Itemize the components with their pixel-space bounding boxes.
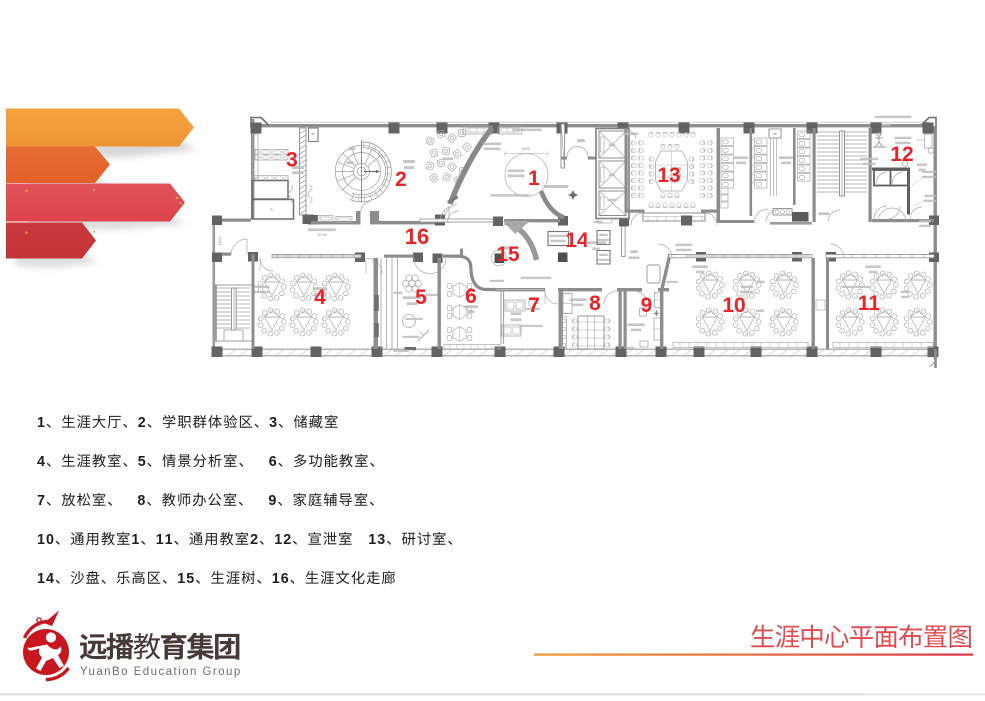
- svg-text:6: 6: [281, 571, 289, 587]
- svg-text:6: 6: [269, 454, 277, 470]
- svg-text:3: 3: [269, 415, 277, 431]
- svg-text:1: 1: [368, 532, 376, 548]
- svg-text:1: 1: [272, 571, 280, 587]
- svg-text:7: 7: [37, 493, 45, 509]
- svg-text:8: 8: [137, 493, 145, 509]
- svg-text:9: 9: [641, 294, 653, 317]
- svg-text:1: 1: [165, 532, 173, 548]
- svg-text:9: 9: [268, 493, 276, 509]
- svg-text:11: 11: [858, 292, 881, 315]
- svg-text:36.0m: 36.0m: [317, 233, 327, 237]
- svg-text:1: 1: [156, 532, 164, 548]
- svg-text:5: 5: [186, 571, 194, 587]
- svg-text:13: 13: [657, 164, 680, 187]
- svg-text:16: 16: [405, 224, 429, 249]
- svg-text:2: 2: [250, 532, 258, 548]
- svg-text:2: 2: [395, 168, 407, 191]
- svg-text:2: 2: [138, 415, 146, 431]
- svg-text:6000: 6000: [522, 147, 530, 151]
- svg-text:1: 1: [37, 532, 45, 548]
- svg-text:1: 1: [177, 571, 185, 587]
- svg-text:2: 2: [283, 532, 291, 548]
- svg-text:15: 15: [496, 243, 520, 266]
- svg-text:1: 1: [37, 415, 45, 431]
- svg-text:7: 7: [528, 294, 540, 317]
- svg-text:10: 10: [722, 294, 745, 317]
- svg-text:8: 8: [589, 292, 601, 315]
- svg-text:1: 1: [528, 167, 540, 190]
- svg-text:1: 1: [37, 571, 45, 587]
- svg-text:1: 1: [131, 532, 139, 548]
- svg-text:0: 0: [46, 532, 54, 548]
- svg-text:4: 4: [46, 571, 54, 587]
- svg-text:3: 3: [286, 149, 298, 172]
- svg-text:4: 4: [314, 286, 326, 309]
- svg-text:5: 5: [138, 454, 146, 470]
- svg-text:14: 14: [565, 229, 589, 252]
- svg-text:1: 1: [274, 532, 282, 548]
- svg-text:4: 4: [37, 454, 45, 470]
- svg-text:5: 5: [415, 286, 427, 309]
- svg-text:12: 12: [890, 143, 913, 166]
- svg-text:1825: 1825: [217, 236, 222, 246]
- svg-text:3: 3: [377, 532, 385, 548]
- svg-text:YuanBo Education Group: YuanBo Education Group: [80, 666, 242, 678]
- svg-text:6: 6: [465, 285, 477, 308]
